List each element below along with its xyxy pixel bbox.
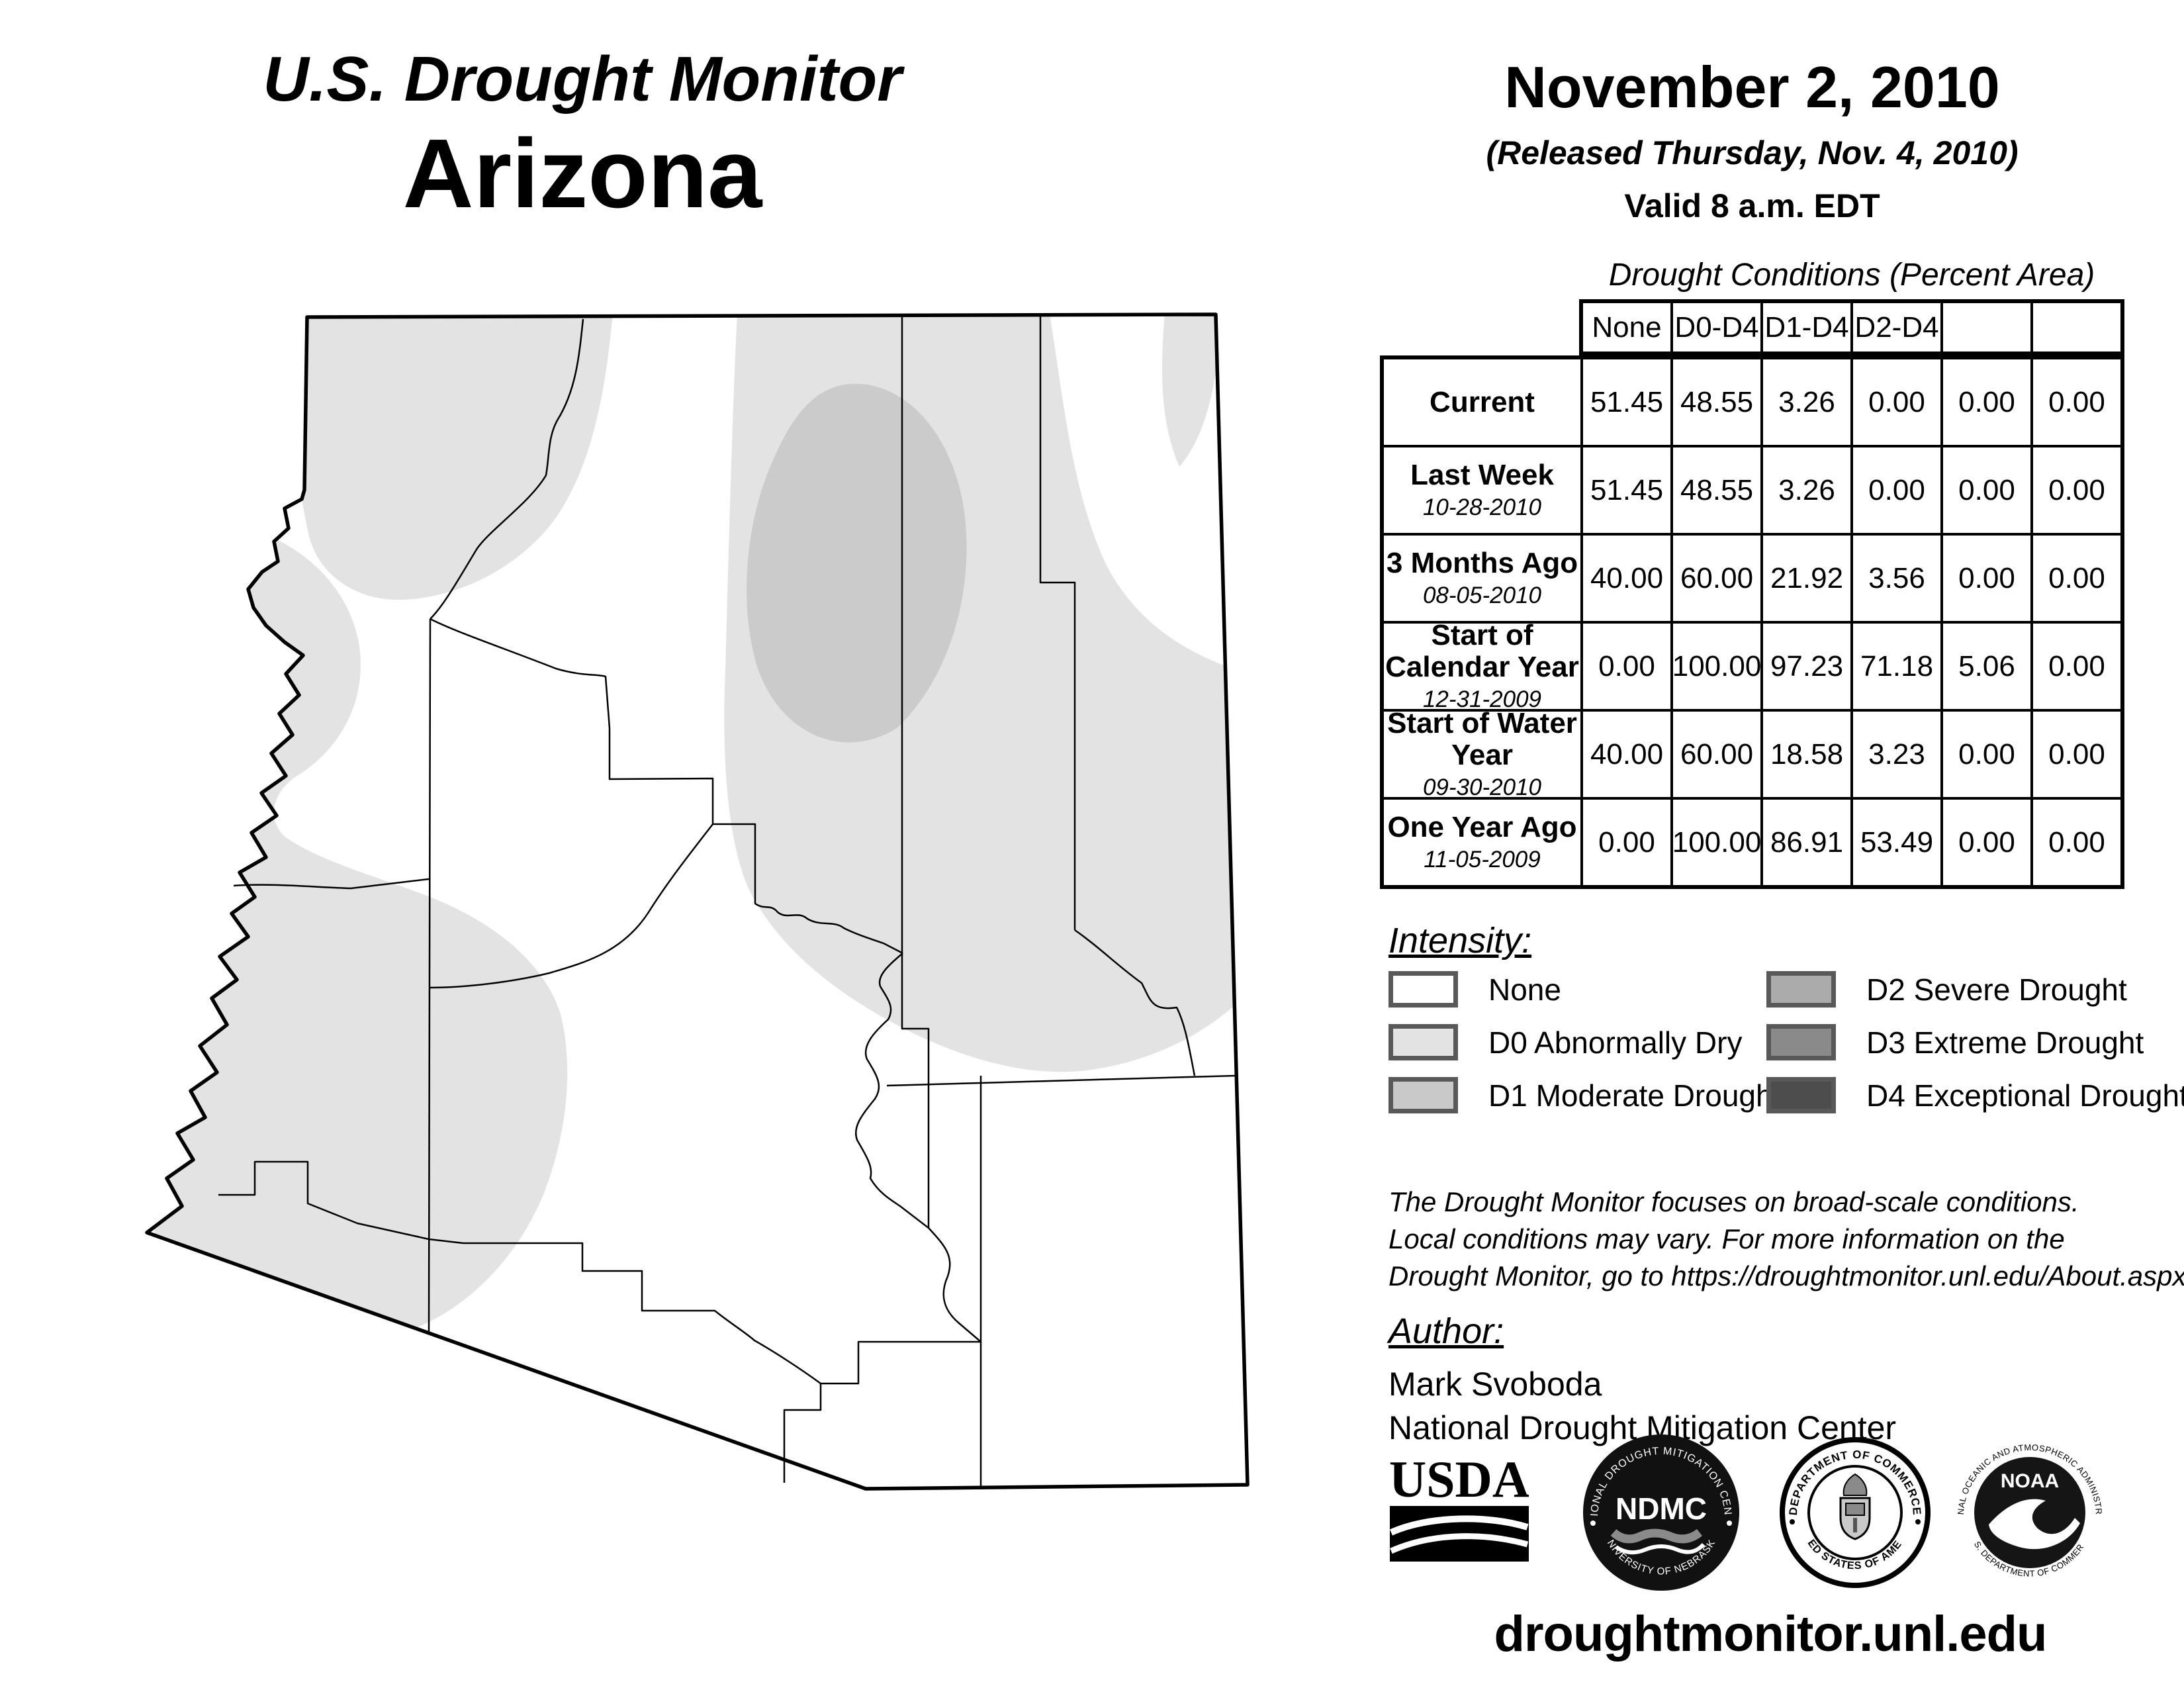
- report-title: U.S. Drought Monitor: [185, 46, 979, 113]
- region-title: Arizona: [185, 122, 979, 225]
- table-value: 3.23: [1853, 712, 1940, 797]
- arizona-drought-map: [119, 298, 1284, 1536]
- table-value: 5.06: [1943, 624, 2030, 709]
- drought-monitor-report: U.S. Drought Monitor Arizona November 2,…: [0, 0, 2184, 1688]
- table-caption: Drought Conditions (Percent Area): [1579, 257, 2124, 293]
- legend-heading: Intensity:: [1388, 920, 1531, 961]
- table-value: 0.00: [1943, 447, 2030, 533]
- legend-swatch-d3: [1766, 1024, 1836, 1060]
- legend-swatch-d1: [1388, 1077, 1458, 1113]
- legend-item-d2: D2 Severe Drought: [1766, 971, 2127, 1008]
- col-header-d0d4: D0-D4: [1673, 303, 1760, 352]
- d0-region-ne-corner: [1162, 298, 1223, 467]
- legend-item-d3: D3 Extreme Drought: [1766, 1024, 2144, 1060]
- legend-item-d0: D0 Abnormally Dry: [1388, 1024, 1742, 1060]
- table-value: 0.00: [1943, 712, 2030, 797]
- released-date: (Released Thursday, Nov. 4, 2010): [1380, 134, 2124, 172]
- table-value: 0.00: [1853, 359, 1940, 445]
- table-value: 3.26: [1763, 447, 1850, 533]
- table-value: 0.00: [2033, 447, 2120, 533]
- noaa-logo: NATIONAL OCEANIC AND ATMOSPHERIC ADMINIS…: [1954, 1436, 2106, 1589]
- table-value: 3.56: [1853, 536, 1940, 621]
- table-value: 18.58: [1763, 712, 1850, 797]
- table-row-label: 3 Months Ago 08-05-2010: [1384, 536, 1580, 621]
- table-value: 100.00: [1673, 624, 1760, 709]
- table-value: 0.00: [1853, 447, 1940, 533]
- table-row-label: Last Week 10-28-2010: [1384, 447, 1580, 533]
- table-value: 71.18: [1853, 624, 1940, 709]
- author-name: Mark Svoboda: [1388, 1365, 1602, 1403]
- table-value: 0.00: [1583, 800, 1670, 885]
- svg-text:NOAA: NOAA: [2001, 1470, 2059, 1492]
- table-value: 3.26: [1763, 359, 1850, 445]
- table-value: 0.00: [2033, 536, 2120, 621]
- table-value: 51.45: [1583, 447, 1670, 533]
- table-value: 0.00: [1583, 624, 1670, 709]
- table-value: 86.91: [1763, 800, 1850, 885]
- col-header-d4: D4: [2033, 303, 2120, 352]
- usda-logo: USDA: [1390, 1453, 1529, 1572]
- legend-item-d1: D1 Moderate Drought: [1388, 1077, 1781, 1113]
- table-row-label: Start of Water Year 09-30-2010: [1384, 712, 1580, 797]
- table-value: 0.00: [2033, 712, 2120, 797]
- svg-text:USDA: USDA: [1390, 1453, 1529, 1508]
- table-value: 0.00: [2033, 800, 2120, 885]
- table-value: 40.00: [1583, 536, 1670, 621]
- footer-url: droughtmonitor.unl.edu: [1380, 1605, 2161, 1663]
- map-date: November 2, 2010: [1380, 58, 2124, 117]
- disclaimer-text: The Drought Monitor focuses on broad-sca…: [1388, 1184, 2184, 1295]
- table-value: 100.00: [1673, 800, 1760, 885]
- table-value: 48.55: [1673, 447, 1760, 533]
- legend-item-d4: D4 Exceptional Drought: [1766, 1077, 2184, 1113]
- d0-region-northwest: [285, 298, 614, 600]
- d0-region-west: [139, 516, 567, 1355]
- date-block: November 2, 2010 (Released Thursday, Nov…: [1380, 58, 2124, 225]
- legend-item-none: None: [1388, 971, 1561, 1008]
- doc-seal-logo: DEPARTMENT OF COMMERCE UNITED STATES OF …: [1779, 1436, 1931, 1589]
- col-header-d1d4: D1-D4: [1763, 303, 1850, 352]
- svg-text:NDMC: NDMC: [1615, 1491, 1707, 1526]
- legend-swatch-d4: [1766, 1077, 1836, 1113]
- col-header-d3d4: D3-D4: [1943, 303, 2030, 352]
- report-title-block: U.S. Drought Monitor Arizona: [185, 46, 979, 225]
- drought-table: Current 51.45 48.55 3.26 0.00 0.00 0.00 …: [1380, 355, 2124, 889]
- table-value: 0.00: [1943, 359, 2030, 445]
- ndmc-logo: NATIONAL DROUGHT MITIGATION CENTER UNIVE…: [1582, 1433, 1741, 1592]
- table-value: 21.92: [1763, 536, 1850, 621]
- legend-swatch-d0: [1388, 1024, 1458, 1060]
- table-value: 51.45: [1583, 359, 1670, 445]
- table-row-label: One Year Ago 11-05-2009: [1384, 800, 1580, 885]
- table-value: 0.00: [2033, 624, 2120, 709]
- table-value: 53.49: [1853, 800, 1940, 885]
- valid-time: Valid 8 a.m. EDT: [1380, 187, 2124, 225]
- table-row-label: Current: [1384, 359, 1580, 445]
- table-value: 48.55: [1673, 359, 1760, 445]
- legend-swatch-d2: [1766, 971, 1836, 1008]
- drought-table-header: None D0-D4 D1-D4 D2-D4 D3-D4 D4: [1579, 299, 2124, 355]
- table-row-label: Start of Calendar Year 12-31-2009: [1384, 624, 1580, 709]
- author-heading: Author:: [1388, 1311, 1504, 1352]
- table-value: 40.00: [1583, 712, 1670, 797]
- table-value: 60.00: [1673, 712, 1760, 797]
- table-value: 60.00: [1673, 536, 1760, 621]
- table-value: 97.23: [1763, 624, 1850, 709]
- table-value: 0.00: [2033, 359, 2120, 445]
- table-value: 0.00: [1943, 536, 2030, 621]
- legend-swatch-none: [1388, 971, 1458, 1008]
- col-header-none: None: [1583, 303, 1670, 352]
- table-value: 0.00: [1943, 800, 2030, 885]
- col-header-d2d4: D2-D4: [1853, 303, 1940, 352]
